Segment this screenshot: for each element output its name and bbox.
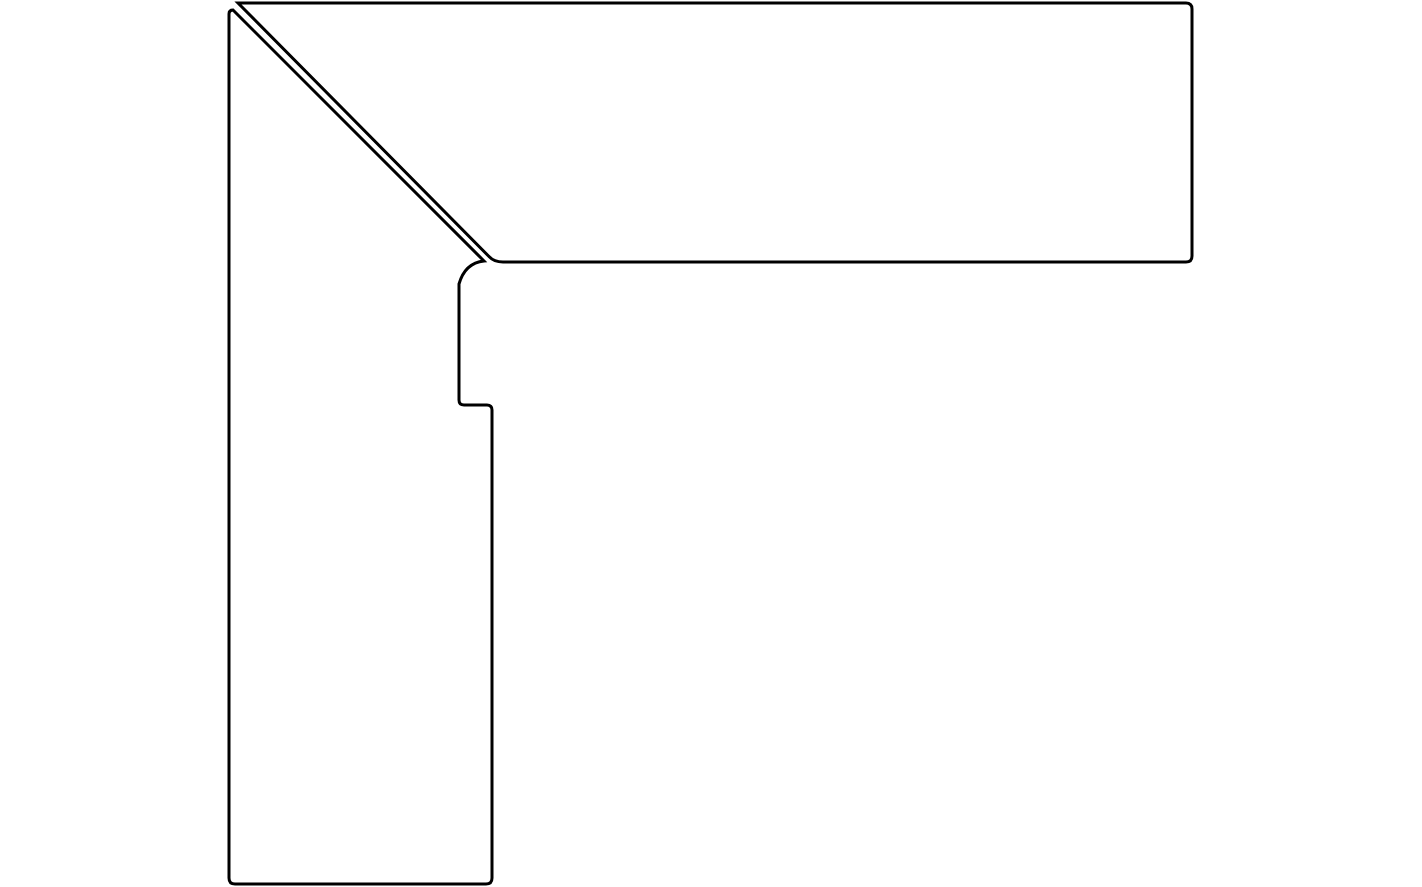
left-vertical-board-outline <box>229 10 492 884</box>
drawing-canvas <box>0 0 1422 887</box>
corner-profile-diagram <box>0 0 1422 887</box>
top-horizontal-board-outline <box>238 3 1192 262</box>
